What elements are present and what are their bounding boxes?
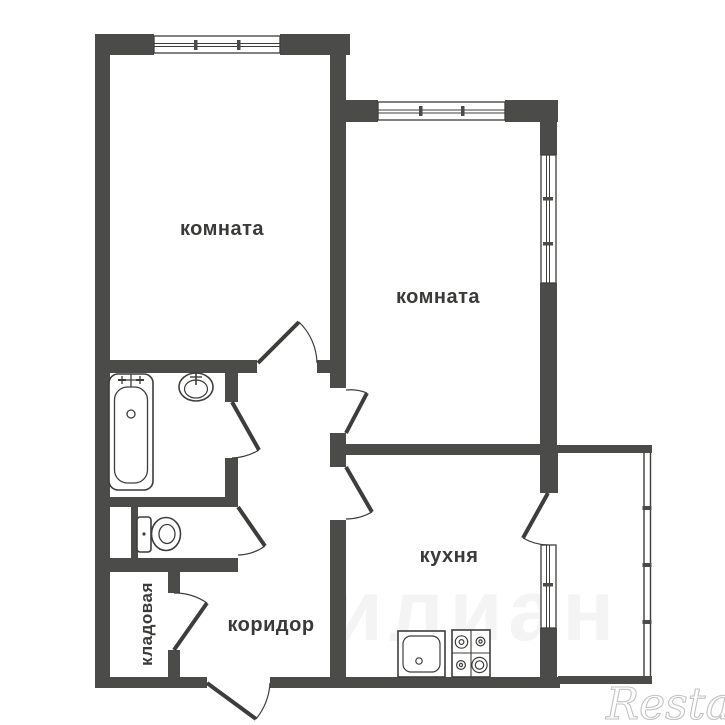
room1-top-window — [154, 36, 280, 53]
wall-segment — [95, 677, 207, 688]
room1-label: комната — [180, 218, 264, 240]
wall-segment — [540, 283, 557, 445]
stove — [452, 630, 490, 677]
kitchen-door — [346, 467, 372, 519]
corridor-label: коридор — [227, 614, 314, 636]
floor-plan-svg: илиан — [0, 0, 725, 725]
wall-segment — [330, 433, 346, 467]
kitchen-sink — [398, 631, 445, 677]
floor-plan-image: илиан — [0, 0, 725, 725]
wall-segment — [95, 558, 238, 572]
wall-segment — [317, 360, 333, 373]
wall-segment — [95, 497, 238, 507]
entrance-door — [207, 683, 270, 719]
wall-segment — [540, 445, 558, 493]
balcony-glazing — [643, 453, 652, 676]
wall-segment — [270, 677, 560, 688]
wall-segment — [225, 360, 238, 402]
room2-label: комната — [396, 286, 480, 308]
wall-segment — [345, 100, 378, 122]
wall-segment — [540, 628, 557, 677]
toilet — [137, 517, 181, 552]
room2-top-window — [378, 102, 505, 120]
kitchen-label: кухня — [420, 545, 479, 567]
wall-segment — [330, 520, 346, 688]
storage-door — [174, 593, 207, 650]
wall-segment — [168, 572, 180, 593]
wall-segment — [540, 122, 557, 155]
wall-segment — [95, 34, 154, 55]
storage-label: кладовая — [137, 582, 156, 666]
wall-segment — [280, 34, 350, 55]
bathtub — [109, 374, 153, 490]
room2-door — [346, 390, 367, 433]
bathroom-door — [232, 402, 259, 458]
room1-door — [258, 322, 317, 363]
room2-right-window — [541, 155, 556, 283]
wall-segment — [558, 445, 652, 453]
wash-basin — [179, 372, 213, 401]
wall-segment — [330, 55, 346, 388]
wall-segment — [346, 444, 540, 455]
balcony-door — [523, 493, 548, 545]
restate-watermark: Restate — [605, 679, 725, 725]
toilet-door — [238, 507, 265, 555]
wall-segment — [505, 100, 558, 122]
kitchen-window — [541, 545, 556, 628]
